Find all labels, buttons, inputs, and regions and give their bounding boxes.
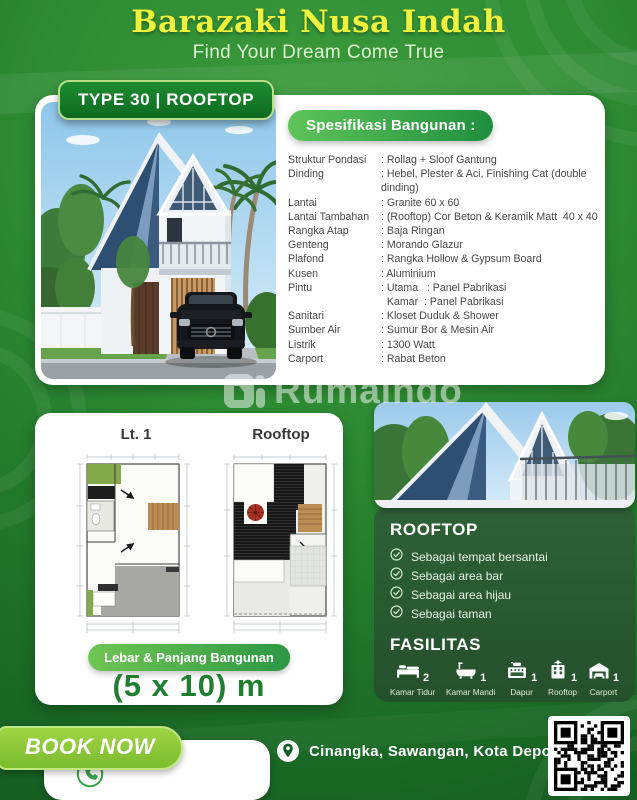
fasilitas-label: Kamar Tidur: [390, 687, 435, 697]
floorplan-title-rooftop: Rooftop: [216, 426, 346, 443]
check-circle-icon: [390, 605, 403, 624]
benefit-label: Sebagai taman: [411, 605, 492, 624]
spec-value: : Rangka Hollow & Gypsum Board: [381, 252, 598, 266]
spec-label: Kusen: [288, 267, 381, 281]
page-subtitle: Find Your Dream Come True: [0, 42, 637, 64]
spec-row: Lantai : Granite 60 x 60: [288, 196, 598, 210]
rooftop-benefits-list: Sebagai tempat bersantai Sebagai area ba…: [390, 548, 619, 624]
spec-value: : Utama : Panel Pabrikasi Kamar : Panel …: [381, 281, 598, 309]
benefit-label: Sebagai area hijau: [411, 586, 511, 605]
spec-label: Plafond: [288, 252, 381, 266]
spec-label: Rangka Atap: [288, 224, 381, 238]
benefit-label: Sebagai tempat bersantai: [411, 548, 548, 567]
spec-label: Pintu: [288, 281, 381, 309]
page-title: Barazaki Nusa Indah: [0, 4, 637, 40]
spec-row: Listrik : 1300 Watt: [288, 338, 598, 352]
spec-value: : (Rooftop) Cor Beton & Keramik Matt 40 …: [381, 210, 598, 224]
spec-row: Sanitari : Kloset Duduk & Shower: [288, 309, 598, 323]
fasilitas-count: 1: [613, 672, 619, 684]
specification-heading: Spesifikasi Bangunan :: [288, 110, 493, 141]
list-item: Sebagai tempat bersantai: [390, 548, 619, 567]
fasilitas-row: 2 Kamar Tidur 1 Kamar Mandi 1: [390, 664, 619, 697]
check-circle-icon: [390, 586, 403, 605]
spec-label: Genteng: [288, 238, 381, 252]
spec-row: Lantai Tambahan : (Rooftop) Cor Beton & …: [288, 210, 598, 224]
fasilitas-label: Kamar Mandi: [446, 687, 495, 697]
fasilitas-count: 1: [531, 672, 537, 684]
spec-row: Struktur Pondasi : Rollag + Sloof Gantun…: [288, 153, 598, 167]
spec-row: Carport : Rabat Beton: [288, 352, 598, 366]
floorplan-title-lt1: Lt. 1: [71, 426, 201, 443]
spec-row: Genteng : Morando Glazur: [288, 238, 598, 252]
spec-label: Lantai Tambahan: [288, 210, 381, 224]
floorplan-panel: Lt. 1 Rooftop: [35, 413, 343, 705]
check-circle-icon: [390, 567, 403, 586]
fasilitas-label: Carport: [588, 687, 619, 697]
fasilitas-label: Dapur: [506, 687, 537, 697]
specification-panel: Spesifikasi Bangunan : Struktur Pondasi …: [35, 95, 605, 385]
fasilitas-heading: FASILITAS: [390, 635, 619, 655]
spec-value: : Rabat Beton: [381, 352, 598, 366]
dimension-badge: Lebar & Panjang Bangunan: [88, 644, 290, 671]
spec-row: Rangka Atap : Baja Ringan: [288, 224, 598, 238]
bathtub-icon: [455, 661, 477, 684]
spec-label: Lantai: [288, 196, 381, 210]
location-row: Cinangka, Sawangan, Kota Depok: [276, 739, 560, 763]
flyer-page: Barazaki Nusa Indah Find Your Dream Come…: [0, 0, 637, 800]
list-item: Sebagai area hijau: [390, 586, 619, 605]
type-badge: TYPE 30 | ROOFTOP: [58, 80, 274, 120]
fasilitas-item: 1 Rooftop: [548, 664, 577, 697]
spec-row: Kusen : Aluminium: [288, 267, 598, 281]
fasilitas-item: 1 Kamar Mandi: [446, 664, 495, 697]
rooftop-photo: [374, 402, 635, 508]
house-illustration: [41, 102, 276, 379]
spec-row: Plafond : Rangka Hollow & Gypsum Board: [288, 252, 598, 266]
spec-value: : Sumur Bor & Mesin Air: [381, 323, 598, 337]
rooftop-illustration: [374, 402, 635, 508]
check-circle-icon: [390, 548, 403, 567]
carport-icon: [588, 661, 610, 684]
list-item: Sebagai taman: [390, 605, 619, 624]
fasilitas-count: 2: [423, 672, 429, 684]
floorplan-lt1-drawing: [71, 446, 196, 638]
rooftop-info-card: ROOFTOP Sebagai tempat bersantai Sebagai…: [374, 506, 635, 702]
specification-block: Spesifikasi Bangunan : Struktur Pondasi …: [288, 110, 598, 366]
header: Barazaki Nusa Indah Find Your Dream Come…: [0, 4, 637, 64]
book-now-button[interactable]: BOOK NOW: [0, 726, 183, 770]
spec-value: : Aluminium: [381, 267, 598, 281]
benefit-label: Sebagai area bar: [411, 567, 503, 586]
list-item: Sebagai area bar: [390, 567, 619, 586]
spec-row: Dinding : Hebel, Plester & Aci, Finishin…: [288, 167, 598, 195]
building-size: (5 x 10) m: [35, 668, 343, 704]
spec-label: Sumber Air: [288, 323, 381, 337]
spec-label: Carport: [288, 352, 381, 366]
spec-label: Dinding: [288, 167, 381, 195]
spec-value: : Rollag + Sloof Gantung: [381, 153, 598, 167]
fasilitas-label: Rooftop: [548, 687, 577, 697]
spec-label: Listrik: [288, 338, 381, 352]
rooftop-icon: [548, 660, 568, 684]
fasilitas-count: 1: [571, 672, 577, 684]
spec-value: : Baja Ringan: [381, 224, 598, 238]
spec-value: : Hebel, Plester & Aci, Finishing Cat (d…: [381, 167, 598, 195]
fasilitas-count: 1: [480, 672, 486, 684]
location-text: Cinangka, Sawangan, Kota Depok: [309, 743, 560, 760]
floorplan-rooftop-drawing: [218, 446, 343, 638]
spec-value: : 1300 Watt: [381, 338, 598, 352]
bed-icon: [396, 661, 420, 684]
spec-label: Struktur Pondasi: [288, 153, 381, 167]
spec-value: : Kloset Duduk & Shower: [381, 309, 598, 323]
spec-label: Sanitari: [288, 309, 381, 323]
spec-value: : Morando Glazur: [381, 238, 598, 252]
house-render-image: [41, 102, 276, 379]
qr-code: [548, 716, 630, 796]
fasilitas-item: 1 Dapur: [506, 664, 537, 697]
fasilitas-item: 2 Kamar Tidur: [390, 664, 435, 697]
spec-row: Sumber Air : Sumur Bor & Mesin Air: [288, 323, 598, 337]
spec-row: Pintu : Utama : Panel Pabrikasi Kamar : …: [288, 281, 598, 309]
kitchen-icon: [506, 661, 528, 684]
location-pin-icon: [276, 739, 300, 763]
fasilitas-item: 1 Carport: [588, 664, 619, 697]
specification-rows: Struktur Pondasi : Rollag + Sloof Gantun…: [288, 153, 598, 366]
rooftop-heading: ROOFTOP: [390, 520, 619, 540]
spec-value: : Granite 60 x 60: [381, 196, 598, 210]
